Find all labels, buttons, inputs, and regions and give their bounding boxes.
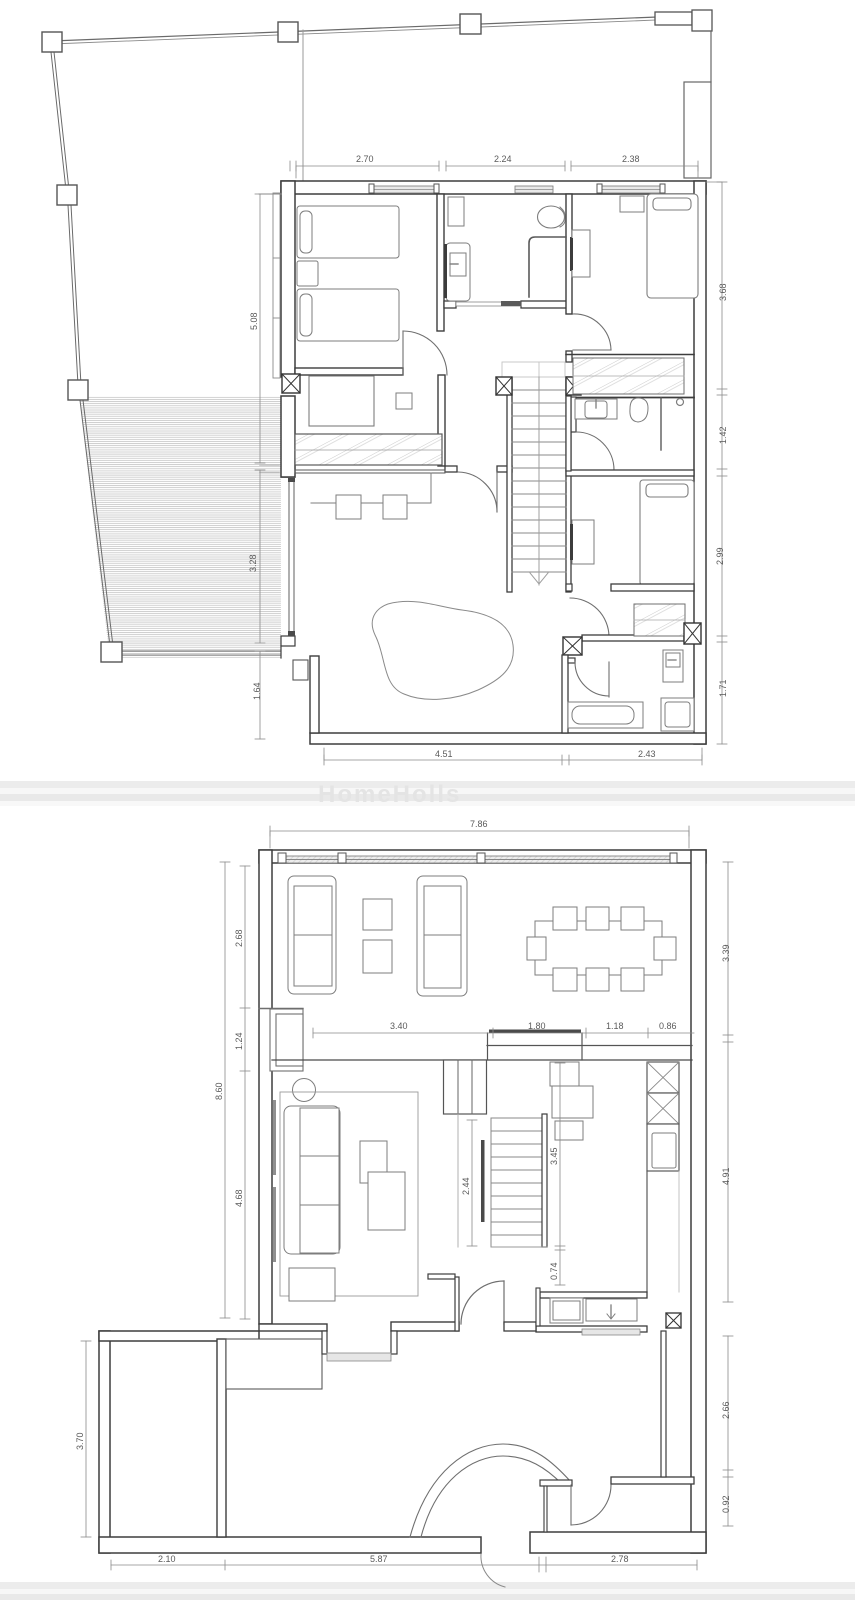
svg-text:2.99: 2.99 <box>715 547 725 565</box>
svg-text:0.92: 0.92 <box>721 1495 731 1513</box>
svg-text:7.86: 7.86 <box>470 819 488 829</box>
svg-text:2.66: 2.66 <box>721 1401 731 1419</box>
svg-text:1.64: 1.64 <box>252 682 262 700</box>
svg-text:3.40: 3.40 <box>390 1021 408 1031</box>
svg-text:4.51: 4.51 <box>435 749 453 759</box>
svg-text:1.42: 1.42 <box>718 426 728 444</box>
svg-text:3.28: 3.28 <box>248 554 258 572</box>
svg-text:0.74: 0.74 <box>549 1262 559 1280</box>
svg-text:1.80: 1.80 <box>528 1021 546 1031</box>
svg-text:3.70: 3.70 <box>75 1432 85 1450</box>
svg-text:HomeHolls: HomeHolls <box>318 781 461 808</box>
svg-text:2.44: 2.44 <box>461 1177 471 1195</box>
svg-text:2.70: 2.70 <box>356 154 374 164</box>
svg-text:2.24: 2.24 <box>494 154 512 164</box>
svg-text:4.91: 4.91 <box>721 1167 731 1185</box>
svg-text:5.08: 5.08 <box>249 312 259 330</box>
svg-text:2.43: 2.43 <box>638 749 656 759</box>
svg-text:1.71: 1.71 <box>718 679 728 697</box>
svg-text:2.68: 2.68 <box>234 929 244 947</box>
svg-text:2.10: 2.10 <box>158 1554 176 1564</box>
svg-text:4.68: 4.68 <box>234 1189 244 1207</box>
svg-text:3.39: 3.39 <box>721 944 731 962</box>
svg-text:8.60: 8.60 <box>214 1082 224 1100</box>
svg-text:2.38: 2.38 <box>622 154 640 164</box>
svg-text:3.68: 3.68 <box>718 283 728 301</box>
svg-text:1.24: 1.24 <box>234 1032 244 1050</box>
svg-text:5.87: 5.87 <box>370 1554 388 1564</box>
svg-text:1.18: 1.18 <box>606 1021 624 1031</box>
svg-text:2.78: 2.78 <box>611 1554 629 1564</box>
svg-text:0.86: 0.86 <box>659 1021 677 1031</box>
svg-text:3.45: 3.45 <box>549 1147 559 1165</box>
